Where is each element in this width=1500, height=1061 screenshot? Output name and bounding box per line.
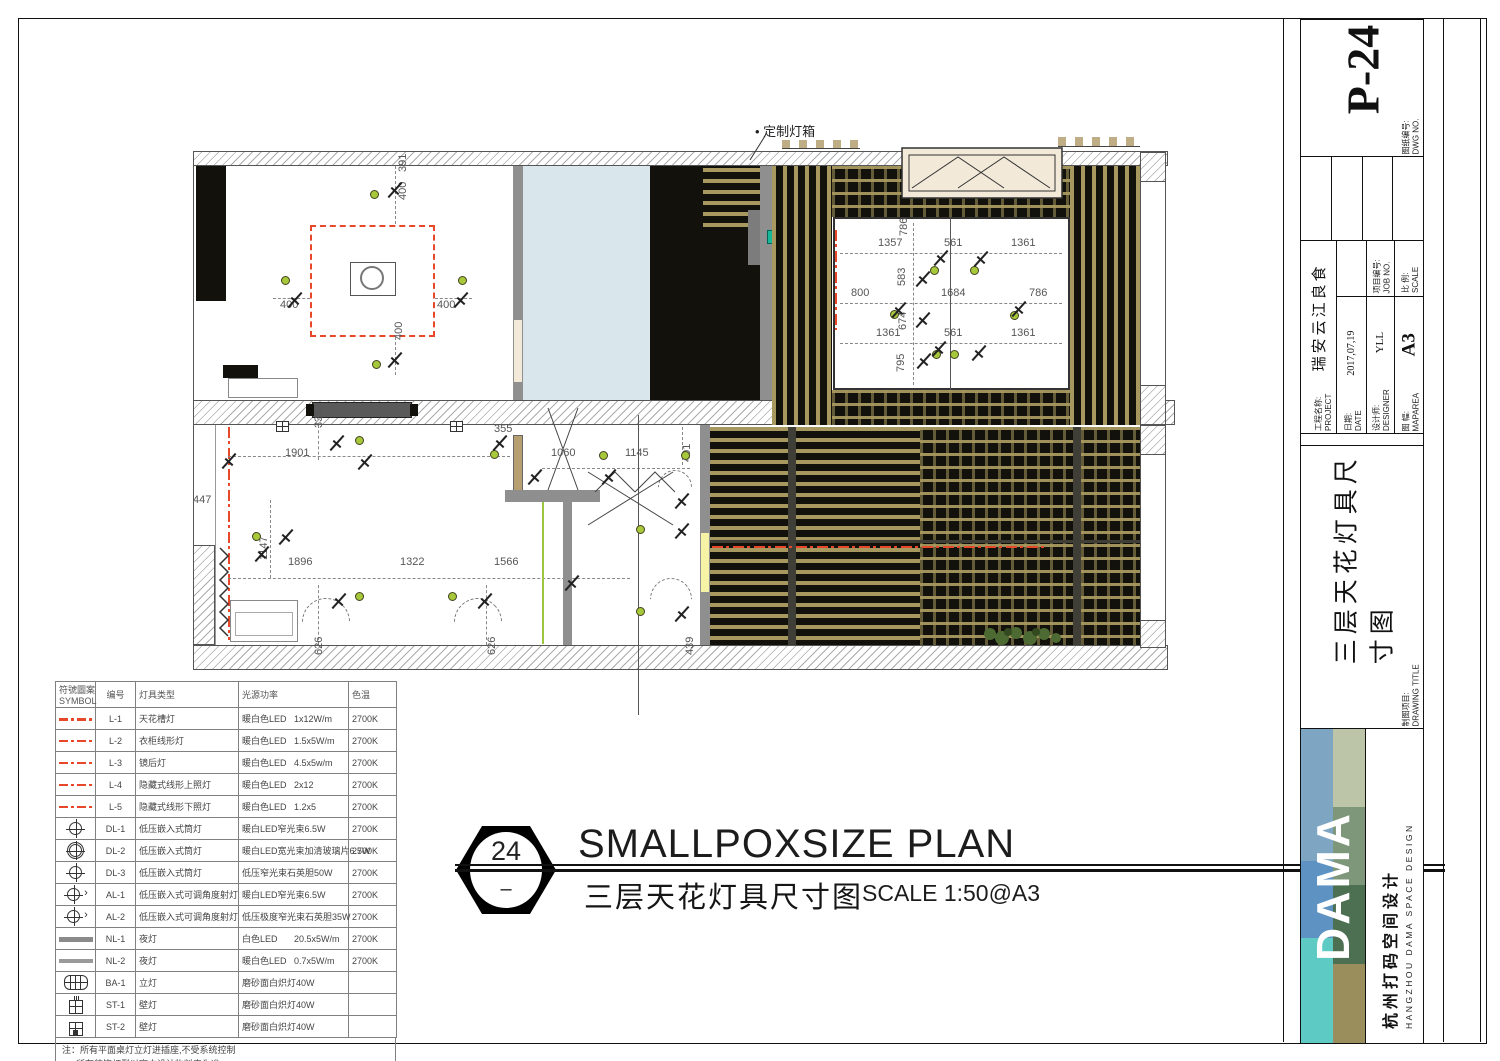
legend-symbol-L-4 — [56, 774, 96, 796]
legend-header-code: 编号 — [96, 682, 136, 708]
lightbox-label: • 定制灯箱 — [755, 121, 815, 140]
legend-code: L-1 — [96, 708, 136, 730]
legend-row: L-5隐藏式线形下照灯暖白色LED1.2x52700K — [56, 796, 397, 818]
light-dot — [355, 592, 364, 601]
light-dot — [490, 450, 499, 459]
spotlight-marker — [476, 593, 492, 609]
dimension-label: 355 — [494, 424, 512, 435]
lamp-symbol-icon — [59, 959, 93, 963]
light-dot — [281, 276, 290, 285]
legend-symbol-ST-2 — [56, 1016, 96, 1038]
spotlight-marker — [330, 593, 346, 609]
legend-code: DL-1 — [96, 818, 136, 840]
lamp-symbol-icon — [69, 1000, 83, 1014]
spotlight-marker — [452, 292, 468, 308]
spotlight-marker — [386, 352, 402, 368]
legend-row: ST-1壁灯磨砂面白炽灯40W — [56, 994, 397, 1016]
legend-temp: 2700K — [349, 708, 397, 730]
legend-code: NL-1 — [96, 928, 136, 950]
dimension-label: 1145 — [625, 448, 649, 459]
legend-note: 注：所有平面桌灯立灯进插座,不受系统控制 所有装饰灯型以室内设计物料表为准 — [55, 1038, 396, 1061]
legend-source-power: 白色LED20.5x5W/m — [239, 928, 349, 950]
plan-canvas: • 定制灯箱 391400400400400135778656113618005… — [190, 140, 1175, 672]
lamp-symbol-icon — [59, 784, 93, 786]
legend-note-line2: 所有装饰灯型以室内设计物料表为准 — [62, 1057, 389, 1061]
designer-value: YLL — [1366, 296, 1394, 389]
spotlight-marker — [277, 529, 293, 545]
lamp-symbol-icon — [59, 937, 93, 942]
legend-row: L-3镜后灯暖白色LED4.5x5w/m2700K — [56, 752, 397, 774]
light-dot — [458, 276, 467, 285]
dama-logo: DAMA — [1301, 729, 1365, 1043]
light-dot — [252, 532, 261, 541]
legend-code: ST-1 — [96, 994, 136, 1016]
project-label: 工程名称:PROJECT — [1314, 394, 1336, 434]
legend-temp: 2700K — [349, 840, 397, 862]
legend-symbol-DL-3 — [56, 862, 96, 884]
dimension-label: 447 — [193, 495, 211, 506]
legend-row: AL-1低压嵌入式可调角度射灯暖白LED窄光束6.5W2700K — [56, 884, 397, 906]
dimension-label: 1322 — [400, 557, 424, 568]
legend-symbol-AL-1 — [56, 884, 96, 906]
spotlight-marker — [890, 302, 906, 318]
legend-code: DL-3 — [96, 862, 136, 884]
legend-type: 低压嵌入式可调角度射灯 — [136, 884, 239, 906]
legend-type: 低压嵌入式可调角度射灯 — [136, 906, 239, 928]
lamp-symbol-icon — [64, 975, 88, 990]
legend-source-power: 暖白色LED4.5x5w/m — [239, 752, 349, 774]
legend-source-power: 低压极度窄光束石英胆35W — [239, 906, 349, 928]
legend-type: 夜灯 — [136, 950, 239, 972]
legend-symbol-BA-1 — [56, 972, 96, 994]
dimension-label: 786 — [899, 218, 910, 236]
drawing-title-label: 制图项目:DRAWING TITLE — [1401, 664, 1423, 729]
dimension-label: 583 — [897, 268, 908, 286]
legend-code: L-3 — [96, 752, 136, 774]
dimension-label: 800 — [851, 288, 869, 299]
dimension-label: 626 — [487, 637, 498, 655]
light-dot — [950, 350, 959, 359]
legend-temp — [349, 994, 397, 1016]
legend-note-line1: 注：所有平面桌灯立灯进插座,不受系统控制 — [62, 1043, 389, 1057]
light-dot — [636, 525, 645, 534]
jobno-label: 项目编号:JOB NO. — [1372, 259, 1394, 296]
legend-type: 低压嵌入式筒灯 — [136, 840, 239, 862]
project-box: 工程名称:PROJECT 瑞安云江良食 日期:DATE 2017,07,19 项… — [1300, 240, 1424, 435]
legend-source-power: 暖白LED窄光束6.5W — [239, 818, 349, 840]
legend-temp: 2700K — [349, 774, 397, 796]
legend-type: 低压嵌入式筒灯 — [136, 862, 239, 884]
dimension-label: 1361 — [1011, 328, 1035, 339]
legend-source-power: 暖白LED宽光束加清玻璃片6.5W — [239, 840, 349, 862]
stair-cross-marks — [548, 408, 675, 525]
light-dot — [930, 266, 939, 275]
legend-code: BA-1 — [96, 972, 136, 994]
legend-temp: 2700K — [349, 884, 397, 906]
dwgno-box: 图纸编号:DWG NO. P-24 — [1300, 19, 1424, 158]
legend-row: AL-2低压嵌入式可调角度射灯低压极度窄光束石英胆35W2700K — [56, 906, 397, 928]
spotlight-marker — [932, 250, 948, 266]
lamp-symbol-icon — [67, 888, 80, 901]
spotlight-marker — [972, 251, 988, 267]
spotlight-marker — [253, 546, 269, 562]
legend-symbol-L-5 — [56, 796, 96, 818]
spotlight-marker — [220, 453, 236, 469]
legend-symbol-L-1 — [56, 708, 96, 730]
legend-type: 隐藏式线形上照灯 — [136, 774, 239, 796]
plan-title-en: SMALLPOXSIZE PLAN — [578, 822, 1015, 867]
logo-text-wrap: DAMA — [1301, 729, 1365, 1043]
spotlight-marker — [915, 353, 931, 369]
light-dot — [448, 592, 457, 601]
legend-source-power: 磨砂面白炽灯40W — [239, 1016, 349, 1038]
legend-code: DL-2 — [96, 840, 136, 862]
plants — [984, 627, 1061, 645]
legend-source-power: 暖白色LED0.7x5W/m — [239, 950, 349, 972]
legend-row: L-4隐藏式线形上照灯暖白色LED2x122700K — [56, 774, 397, 796]
spotlight-marker — [914, 271, 930, 287]
legend-type: 天花槽灯 — [136, 708, 239, 730]
lamp-symbol-icon — [69, 844, 82, 857]
legend-type: 镜后灯 — [136, 752, 239, 774]
legend-symbol-DL-2 — [56, 840, 96, 862]
legend-type: 壁灯 — [136, 1016, 239, 1038]
plan-scale: SCALE 1:50@A3 — [862, 880, 1040, 907]
legend-row: ST-2壁灯磨砂面白炽灯40W — [56, 1016, 397, 1038]
scale-label: 比 例:SCALE — [1401, 267, 1423, 296]
titleblock-divider — [1283, 18, 1284, 1042]
legend-code: L-4 — [96, 774, 136, 796]
date-label: 日期:DATE — [1344, 410, 1366, 434]
spotlight-marker — [563, 575, 579, 591]
legend-symbol-NL-1 — [56, 928, 96, 950]
revision-cells — [1300, 156, 1424, 242]
lamp-symbol-icon — [59, 762, 93, 764]
spotlight-marker — [526, 469, 542, 485]
legend-temp: 2700K — [349, 818, 397, 840]
legend-code: AL-1 — [96, 884, 136, 906]
light-dot — [599, 451, 608, 460]
light-dot — [636, 607, 645, 616]
legend-symbol-AL-2 — [56, 906, 96, 928]
spotlight-marker — [286, 292, 302, 308]
legend-type: 立灯 — [136, 972, 239, 994]
spotlight-marker — [600, 469, 616, 485]
logo-box: DAMA 杭州打码空间设计 HANGZHOU DAMA SPACE DESIGN — [1300, 728, 1424, 1044]
drawing-number: 24 — [470, 836, 542, 867]
legend-source-power: 暖白色LED1.5x5W/m — [239, 730, 349, 752]
spotlight-marker — [673, 493, 689, 509]
drawing-number-dash: – — [470, 878, 542, 901]
light-dot — [355, 436, 364, 445]
spotlight-marker — [328, 435, 344, 451]
legend-header-source-power: 光源功率 — [239, 682, 349, 708]
spotlight-marker — [491, 435, 507, 451]
dwg-number: P-24 — [1301, 20, 1423, 118]
lamp-symbol-icon — [69, 866, 82, 879]
maparea-cell: 图 幅:MAPAREA A3 — [1394, 296, 1423, 434]
legend-row: BA-1立灯磨砂面白炽灯40W — [56, 972, 397, 994]
legend-type: 低压嵌入式筒灯 — [136, 818, 239, 840]
lamp-symbol-icon — [69, 1022, 83, 1036]
legend-source-power: 暖白LED窄光束6.5W — [239, 884, 349, 906]
dwgno-label: 图纸编号:DWG NO. — [1401, 118, 1423, 157]
maparea-label: 图 幅:MAPAREA — [1401, 392, 1423, 434]
dimension-label: 400 — [394, 322, 405, 340]
legend-temp — [349, 972, 397, 994]
curtain-zigzag — [220, 548, 228, 636]
company-cell: 杭州打码空间设计 HANGZHOU DAMA SPACE DESIGN — [1365, 729, 1423, 1043]
dimension-label: 391 — [398, 154, 409, 172]
dimension-label: 439 — [685, 637, 696, 655]
legend-symbol-DL-1 — [56, 818, 96, 840]
legend-body: L-1天花槽灯暖白色LED1x12W/m2700KL-2衣柜线形灯暖白色LED1… — [56, 708, 397, 1038]
legend-symbol-NL-2 — [56, 950, 96, 972]
legend-temp: 2700K — [349, 796, 397, 818]
dimension-label: 561 — [944, 328, 962, 339]
legend-type: 隐藏式线形下照灯 — [136, 796, 239, 818]
legend: 符號圖案SYMBOL 编号 灯具类型 光源功率 色温 L-1天花槽灯暖白色LED… — [55, 681, 396, 1061]
spotlight-marker — [914, 312, 930, 328]
legend-code: NL-2 — [96, 950, 136, 972]
dimension-label: 1357 — [878, 238, 902, 249]
dimension-label: 1896 — [288, 557, 312, 568]
jobno-cell: 项目编号:JOB NO. — [1366, 241, 1394, 296]
spotlight-marker — [673, 606, 689, 622]
titleblock-divider — [1480, 18, 1481, 1042]
scale-cell: 比 例:SCALE — [1394, 241, 1423, 296]
legend-row: L-1天花槽灯暖白色LED1x12W/m2700K — [56, 708, 397, 730]
legend-row: L-2衣柜线形灯暖白色LED1.5x5W/m2700K — [56, 730, 397, 752]
date-cell: 日期:DATE 2017,07,19 — [1336, 296, 1366, 434]
legend-symbol-ST-1 — [56, 994, 96, 1016]
spotlight-marker — [673, 523, 689, 539]
legend-header-symbol: 符號圖案SYMBOL — [56, 682, 96, 708]
spotlight-marker — [386, 182, 402, 198]
legend-symbol-L-2 — [56, 730, 96, 752]
designer-label: 设计师:DESIGNER — [1372, 389, 1394, 434]
dimension-label: 786 — [1029, 288, 1047, 299]
lamp-symbol-icon — [59, 806, 93, 808]
legend-header-row: 符號圖案SYMBOL 编号 灯具类型 光源功率 色温 — [56, 682, 397, 708]
wall-lamp-icon — [276, 421, 289, 432]
legend-temp: 2700K — [349, 752, 397, 774]
dimension-label: 1361 — [1011, 238, 1035, 249]
project-cell: 工程名称:PROJECT 瑞安云江良食 — [1301, 241, 1336, 434]
spotlight-marker — [970, 345, 986, 361]
legend-row: DL-1低压嵌入式筒灯暖白LED窄光束6.5W2700K — [56, 818, 397, 840]
legend-type: 壁灯 — [136, 994, 239, 1016]
legend-code: ST-2 — [96, 1016, 136, 1038]
dimension-label: 795 — [896, 354, 907, 372]
legend-temp: 2700K — [349, 730, 397, 752]
legend-row: NL-2夜灯暖白色LED0.7x5W/m2700K — [56, 950, 397, 972]
wall-lamp-icon — [450, 421, 463, 432]
company-names: 杭州打码空间设计 HANGZHOU DAMA SPACE DESIGN — [1377, 823, 1414, 1043]
legend-type: 夜灯 — [136, 928, 239, 950]
lamp-symbol-icon — [59, 718, 93, 721]
legend-source-power: 低压窄光束石英胆50W — [239, 862, 349, 884]
lamp-symbol-icon — [59, 740, 93, 742]
drawing-sheet: • 定制灯箱 391400400400400135778656113618005… — [0, 0, 1500, 1061]
legend-temp: 2700K — [349, 906, 397, 928]
drawing-title-value: 三层天花灯具尺寸图 — [1301, 446, 1423, 664]
maparea-value: A3 — [1394, 296, 1423, 392]
company-cn: 杭州打码空间设计 — [1377, 823, 1401, 1029]
legend-source-power: 磨砂面白炽灯40W — [239, 972, 349, 994]
lamp-symbol-icon — [67, 910, 80, 923]
light-dot — [681, 451, 690, 460]
date-value: 2017,07,19 — [1336, 296, 1366, 410]
lamp-symbol-icon — [69, 822, 82, 835]
dimension-label: 1566 — [494, 557, 518, 568]
spotlight-marker — [930, 341, 946, 357]
spotlight-marker — [356, 454, 372, 470]
dimension-label: 1060 — [551, 448, 575, 459]
legend-row: NL-1夜灯白色LED20.5x5W/m2700K — [56, 928, 397, 950]
legend-source-power: 暖白色LED2x12 — [239, 774, 349, 796]
legend-symbol-L-3 — [56, 752, 96, 774]
legend-row: DL-2低压嵌入式筒灯暖白LED宽光束加清玻璃片6.5W2700K — [56, 840, 397, 862]
dimension-label: 1901 — [285, 448, 309, 459]
light-dot — [372, 360, 381, 369]
legend-header-temp: 色温 — [349, 682, 397, 708]
legend-code: AL-2 — [96, 906, 136, 928]
light-dot — [370, 190, 379, 199]
drawing-title-box: 制图项目:DRAWING TITLE 三层天花灯具尺寸图 — [1300, 445, 1424, 730]
legend-temp: 2700K — [349, 862, 397, 884]
legend-source-power: 暖白色LED1.2x5 — [239, 796, 349, 818]
dimension-label: 626 — [314, 637, 325, 655]
legend-code: L-2 — [96, 730, 136, 752]
project-name: 瑞安云江良食 — [1301, 241, 1336, 394]
legend-code: L-5 — [96, 796, 136, 818]
plan-title-cn: 三层天花灯具尺寸图 — [584, 874, 863, 916]
legend-temp — [349, 1016, 397, 1038]
spotlight-marker — [1010, 301, 1026, 317]
legend-header-type: 灯具类型 — [136, 682, 239, 708]
legend-temp: 2700K — [349, 928, 397, 950]
legend-temp: 2700K — [349, 950, 397, 972]
company-en: HANGZHOU DAMA SPACE DESIGN — [1404, 823, 1414, 1029]
dimension-label: 561 — [944, 238, 962, 249]
dimension-label: 335 — [314, 410, 325, 428]
dimension-label: 1684 — [941, 288, 965, 299]
legend-table: 符號圖案SYMBOL 编号 灯具类型 光源功率 色温 L-1天花槽灯暖白色LED… — [55, 681, 397, 1038]
designer-cell: 设计师:DESIGNER YLL — [1366, 296, 1394, 434]
titleblock-divider — [1443, 18, 1444, 1042]
legend-source-power: 磨砂面白炽灯40W — [239, 994, 349, 1016]
legend-source-power: 暖白色LED1x12W/m — [239, 708, 349, 730]
legend-type: 衣柜线形灯 — [136, 730, 239, 752]
legend-row: DL-3低压嵌入式筒灯低压窄光束石英胆50W2700K — [56, 862, 397, 884]
